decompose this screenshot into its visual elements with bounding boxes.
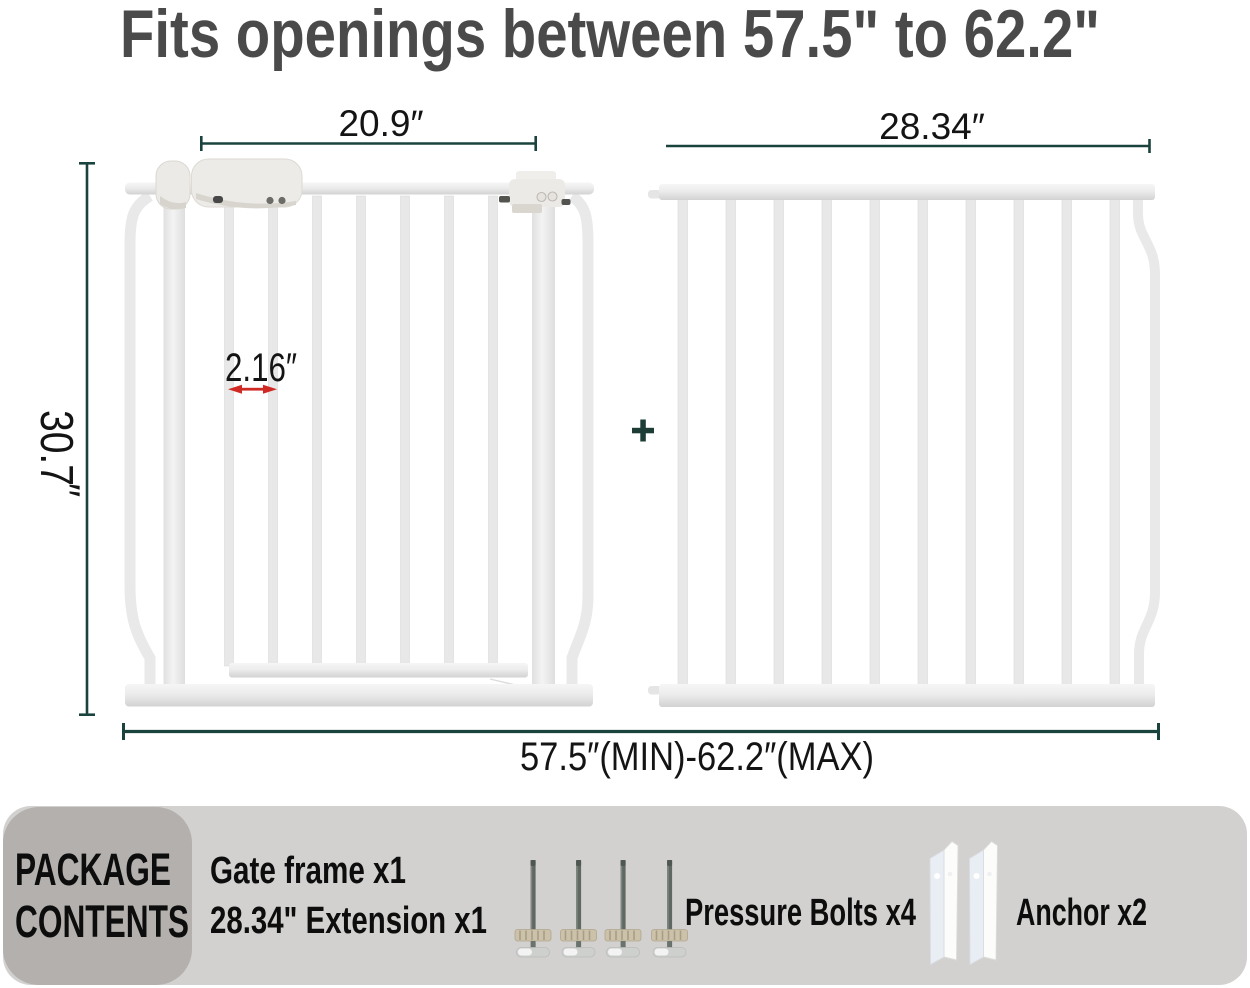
svg-text:28.34" Extension x1: 28.34" Extension x1 xyxy=(210,900,487,942)
svg-text:CONTENTS: CONTENTS xyxy=(15,896,189,947)
svg-text:2.16″: 2.16″ xyxy=(225,346,297,390)
svg-text:″: ″ xyxy=(43,483,87,497)
svg-text:PACKAGE: PACKAGE xyxy=(15,844,171,895)
svg-text:Anchor x2: Anchor x2 xyxy=(1016,892,1147,934)
svg-text:57.5″(MIN)-62.2″(MAX): 57.5″(MIN)-62.2″(MAX) xyxy=(520,735,874,779)
svg-text:28.34″: 28.34″ xyxy=(879,106,985,147)
svg-text:20.9″: 20.9″ xyxy=(338,103,423,144)
svg-text:Pressure Bolts x4: Pressure Bolts x4 xyxy=(685,892,916,934)
svg-text:30.7: 30.7 xyxy=(31,410,83,486)
svg-text:Fits openings between 57.5" to: Fits openings between 57.5" to 62.2" xyxy=(120,0,1100,72)
svg-text:Gate frame x1: Gate frame x1 xyxy=(210,850,406,892)
